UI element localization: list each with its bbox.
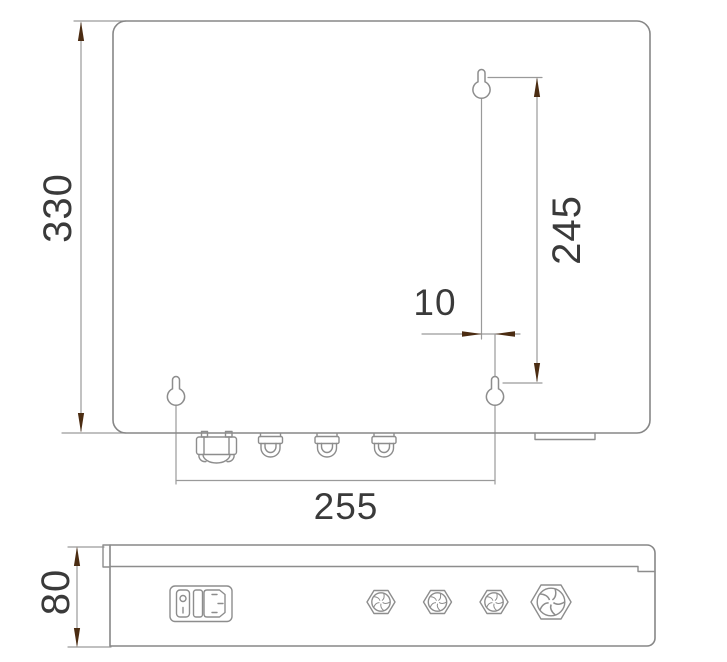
dim-hole-spacing-label: 245 xyxy=(545,195,589,265)
dim-hole-spacing-245: 245 xyxy=(488,78,589,384)
power-inlet-module xyxy=(170,586,232,622)
keyhole-slot-bottom-right xyxy=(486,377,503,406)
arrowhead-down xyxy=(74,628,80,648)
cable-gland-large-icon xyxy=(197,432,237,464)
technical-drawing: 330 245 10 255 xyxy=(0,0,727,662)
hex-gland-icon xyxy=(424,591,452,614)
arrowhead-up xyxy=(534,78,540,98)
dim-width-label: 255 xyxy=(314,486,379,527)
dim-hole-spacing-255: 255 xyxy=(176,405,495,527)
arrowhead-down xyxy=(534,363,540,383)
fuse-holder-icon xyxy=(194,590,203,617)
keyhole-slot-bottom-left xyxy=(167,377,184,406)
lid-overhang xyxy=(103,545,110,567)
cable-gland-small-icon xyxy=(315,434,339,458)
cable-gland-small-icon xyxy=(372,434,396,458)
keyhole-slot-top xyxy=(473,70,490,99)
hex-gland-icon xyxy=(367,591,395,614)
hex-gland-large-icon xyxy=(531,585,571,619)
dim-hole-offset-10: 10 xyxy=(413,98,520,484)
side-view-outline xyxy=(110,545,655,646)
arrowhead-left xyxy=(495,331,515,337)
cable-gland-small-icon xyxy=(259,434,283,458)
rocker-switch-icon xyxy=(177,590,190,617)
hex-gland-icon xyxy=(480,591,508,614)
iec-socket-icon xyxy=(204,590,225,617)
arrowhead-right xyxy=(462,331,482,337)
dim-height-label: 330 xyxy=(36,173,80,243)
dim-hole-offset-label: 10 xyxy=(413,282,456,323)
arrowhead-up xyxy=(78,22,84,42)
dim-depth-label: 80 xyxy=(34,569,78,616)
bottom-edge-tab xyxy=(535,433,595,440)
dim-depth-80: 80 xyxy=(34,547,111,648)
arrowhead-up xyxy=(74,547,80,567)
drawing-canvas: 330 245 10 255 xyxy=(0,0,727,662)
arrowhead-down xyxy=(78,413,84,433)
lid-seam-line xyxy=(110,567,655,572)
